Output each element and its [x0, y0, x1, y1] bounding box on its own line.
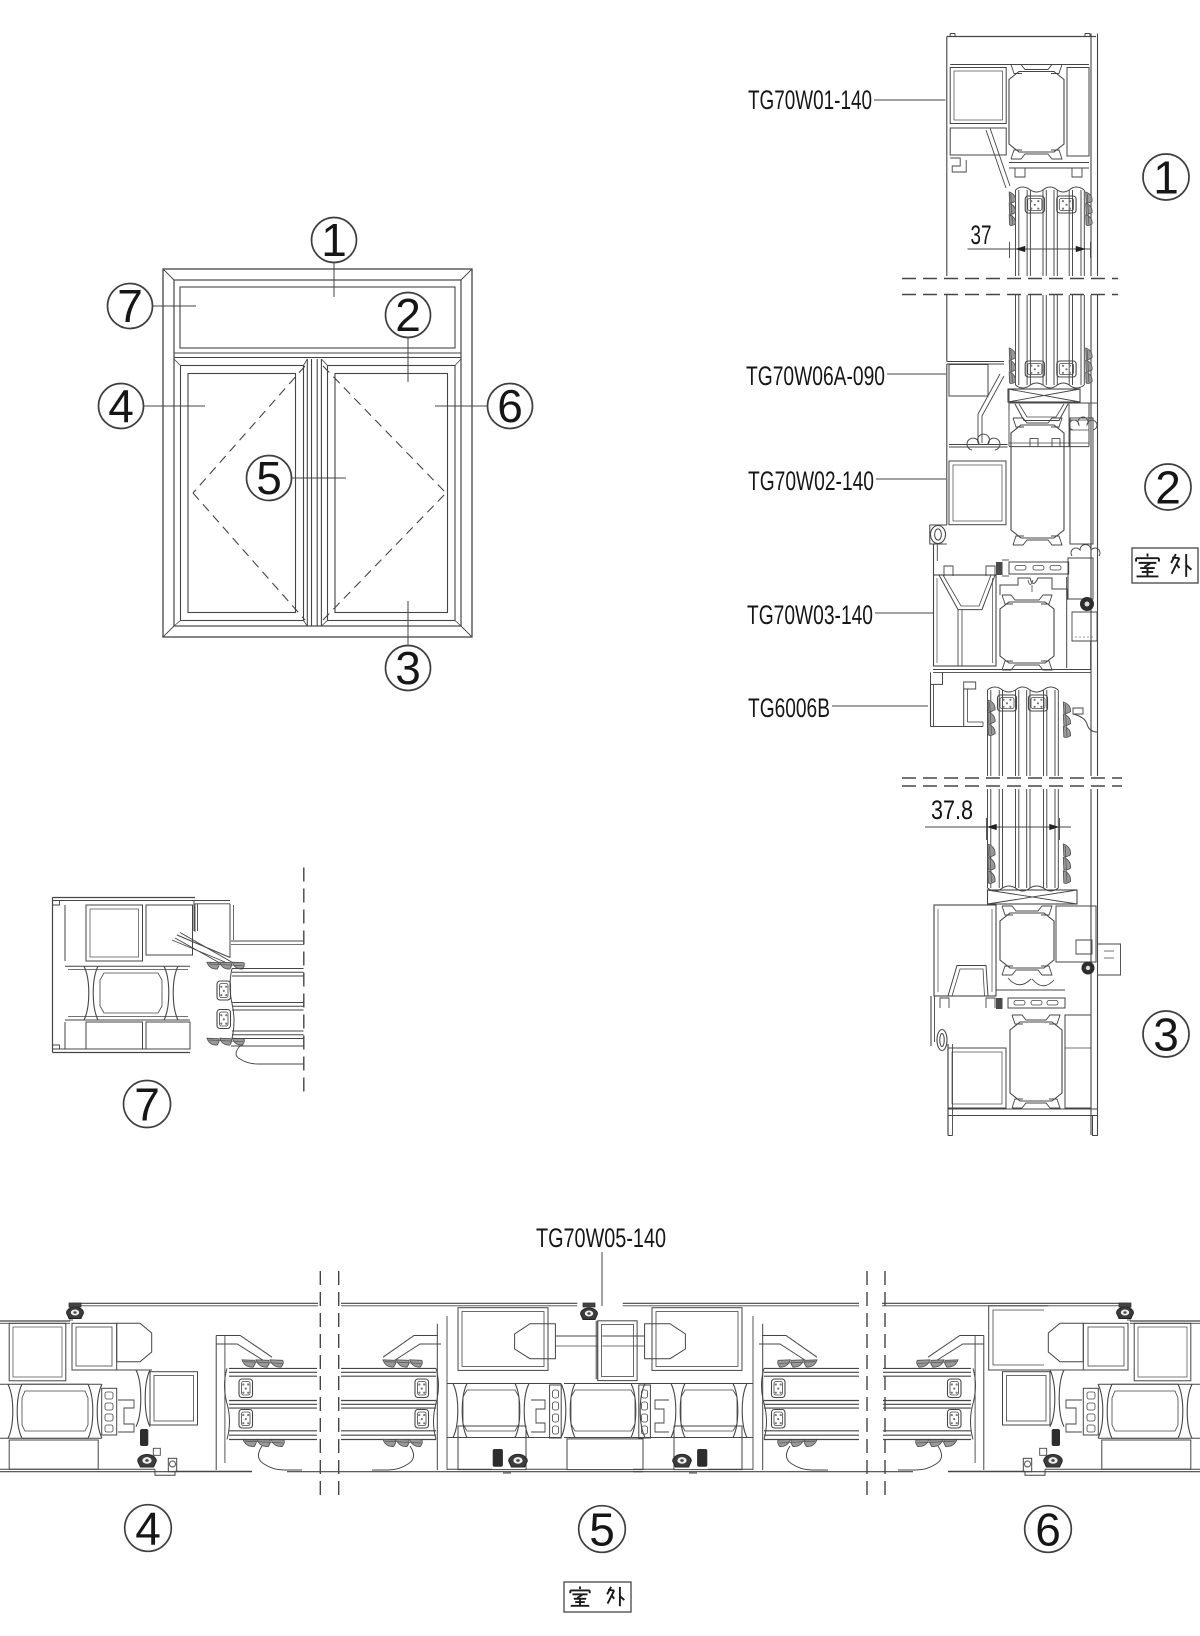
svg-text:4: 4 — [135, 1503, 161, 1555]
svg-text:5: 5 — [589, 1504, 615, 1556]
svg-text:TG70W03-140: TG70W03-140 — [747, 600, 873, 630]
svg-text:6: 6 — [1035, 1504, 1061, 1556]
svg-text:TG70W02-140: TG70W02-140 — [748, 466, 874, 496]
svg-text:TG70W06A-090: TG70W06A-090 — [746, 361, 885, 391]
svg-text:3: 3 — [1153, 1009, 1179, 1061]
svg-text:2: 2 — [1155, 462, 1181, 514]
svg-text:3: 3 — [395, 642, 421, 694]
svg-text:1: 1 — [1153, 152, 1179, 204]
svg-text:7: 7 — [117, 280, 143, 332]
svg-text:5: 5 — [256, 452, 282, 504]
svg-text:37: 37 — [971, 220, 992, 250]
svg-text:TG6006B: TG6006B — [748, 693, 830, 723]
svg-text:TG70W01-140: TG70W01-140 — [748, 85, 872, 115]
svg-text:4: 4 — [108, 380, 134, 432]
svg-text:37.8: 37.8 — [931, 795, 973, 825]
svg-text:6: 6 — [497, 380, 523, 432]
svg-text:1: 1 — [321, 214, 347, 266]
svg-text:TG70W05-140: TG70W05-140 — [536, 1223, 666, 1253]
svg-text:7: 7 — [134, 1079, 160, 1131]
svg-text:2: 2 — [395, 289, 421, 341]
